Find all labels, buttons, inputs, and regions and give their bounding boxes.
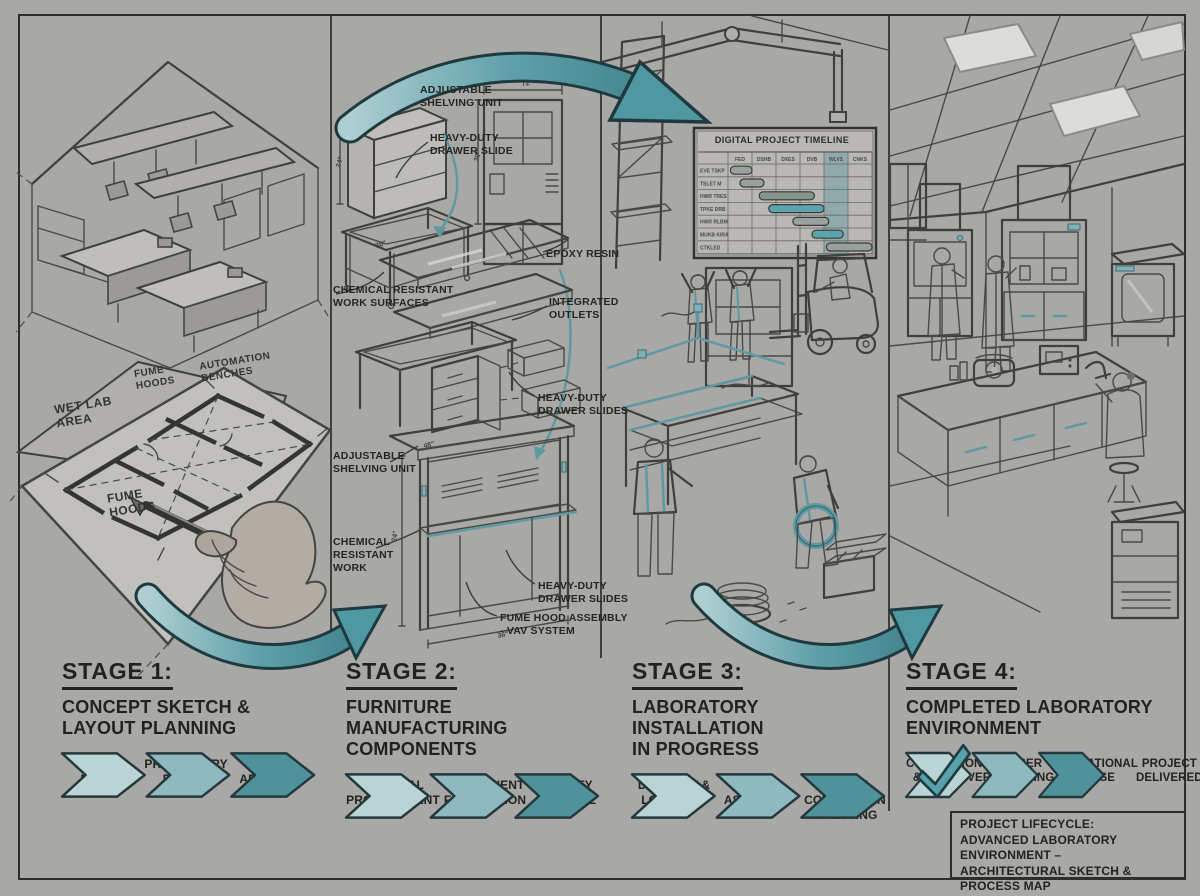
svg-text:WLVS: WLVS: [829, 157, 844, 163]
worker-figure-foreground-left: [634, 439, 692, 576]
svg-text:CNKS: CNKS: [853, 157, 868, 163]
svg-text:DXES: DXES: [781, 157, 795, 163]
title-block-line1: PROJECT LIFECYCLE:: [960, 817, 1176, 833]
forklift-sketch: [770, 244, 878, 354]
annotation-adjustable-shelving: ADJUSTABLE SHELVING UNIT: [333, 450, 416, 476]
panel-stage4-sketch: [890, 16, 1184, 660]
stage3-block: STAGE 3: LABORATORY INSTALLATION IN PROG…: [632, 658, 894, 823]
stage1-subtitle: CONCEPT SKETCH & LAYOUT PLANNING: [62, 697, 314, 739]
annotation-shelving-unit: ADJUSTABLE SHELVING UNIT: [420, 84, 503, 110]
process-map-poster: 60"24"36"72"30"48"24"36" DIGITAL PROJECT…: [0, 0, 1200, 896]
toolbox-sketch: [824, 534, 886, 598]
panel-stage1-sketch: [18, 16, 330, 660]
stage3-subtitle: LABORATORY INSTALLATION IN PROGRESS: [632, 697, 894, 760]
fume-hood-unit-sketch: [475, 86, 562, 264]
svg-text:MUKB KIRA: MUKB KIRA: [700, 233, 729, 239]
dimension-label: 24": [335, 156, 345, 169]
perspective-lab-sketch: [16, 62, 332, 404]
island-bench-sketch: [898, 346, 1146, 486]
svg-text:EVE TSKP: EVE TSKP: [700, 169, 725, 175]
svg-text:CTKLED: CTKLED: [700, 245, 721, 251]
gantt-board: DIGITAL PROJECT TIMELINE FEDDSHBDXESDVBW…: [694, 128, 876, 258]
svg-text:HWR RLBM: HWR RLBM: [700, 220, 728, 226]
annotation-chem-resistant-surfaces: CHEMICAL RESISTANT WORK SURFACES: [333, 284, 453, 310]
stage1-block: STAGE 1: CONCEPT SKETCH & LAYOUT PLANNIN…: [62, 658, 314, 787]
stage1-title: STAGE 1:: [62, 658, 173, 690]
gantt-title: DIGITAL PROJECT TIMELINE: [715, 135, 849, 145]
annotation-fume-hood-assembly: FUME HOOD ASSEMBLY - VAV SYSTEM: [500, 612, 628, 638]
checkmark-icon: [918, 743, 974, 797]
annotation-integrated-outlets: INTEGRATED OUTLETS: [549, 296, 618, 322]
svg-text:DVB: DVB: [807, 157, 818, 163]
seated-scientist-figure: [1096, 372, 1144, 502]
annotation-drawer-slides-upper: HEAVY-DUTY DRAWER SLIDES: [538, 392, 628, 418]
svg-text:FED: FED: [735, 157, 745, 163]
ceiling-grid-sketch: [890, 16, 1184, 220]
stage4-title: STAGE 4:: [906, 658, 1017, 690]
svg-text:DSHB: DSHB: [757, 157, 772, 163]
scaffolding-sketch: [611, 36, 672, 268]
cable-coil-sketch: [666, 583, 770, 624]
project-delivered-label: PROJECT DELIVERED: [1136, 757, 1200, 786]
worker-figure-installer-right: [726, 268, 756, 360]
annotation-chemical-resistant-work: CHEMICAL RESISTANT WORK: [333, 536, 394, 575]
worktop-slabs-sketch: [380, 220, 572, 338]
instrument-tower-sketch: [1112, 502, 1184, 618]
title-block-line3: ARCHITECTURAL SKETCH & PROCESS MAP: [960, 864, 1176, 895]
dimension-label: 72": [521, 80, 533, 88]
worker-figure-foreground-right: [794, 456, 838, 568]
stage2-subtitle: FURNITURE MANUFACTURING COMPONENTS: [346, 697, 606, 760]
title-block-line2: ADVANCED LABORATORY ENVIRONMENT –: [960, 833, 1176, 864]
panel-stage3-sketch: DIGITAL PROJECT TIMELINE FEDDSHBDXESDVBW…: [602, 16, 888, 660]
annotation-epoxy-resin: EPOXY RESIN: [546, 248, 619, 261]
stage4-block: STAGE 4: COMPLETED LABORATORY ENVIRONMEN…: [906, 658, 1188, 786]
svg-text:HWR TRES: HWR TRES: [700, 194, 727, 200]
title-block: PROJECT LIFECYCLE: ADVANCED LABORATORY E…: [950, 811, 1186, 879]
stage2-block: STAGE 2: FURNITURE MANUFACTURING COMPONE…: [346, 658, 606, 808]
stage3-title: STAGE 3:: [632, 658, 743, 690]
dimension-label: 60": [383, 88, 396, 98]
annotation-drawer-slide: HEAVY-DUTY DRAWER SLIDE: [430, 132, 513, 158]
stage4-subtitle: COMPLETED LABORATORY ENVIRONMENT: [906, 697, 1188, 739]
annotation-drawer-slides-lower: HEAVY-DUTY DRAWER SLIDES: [538, 580, 628, 606]
stage2-title: STAGE 2:: [346, 658, 457, 690]
svg-text:TSLET M: TSLET M: [700, 181, 721, 187]
svg-text:TPKE DRB: TPKE DRB: [700, 207, 726, 213]
scientist-figure-left: [928, 248, 964, 360]
